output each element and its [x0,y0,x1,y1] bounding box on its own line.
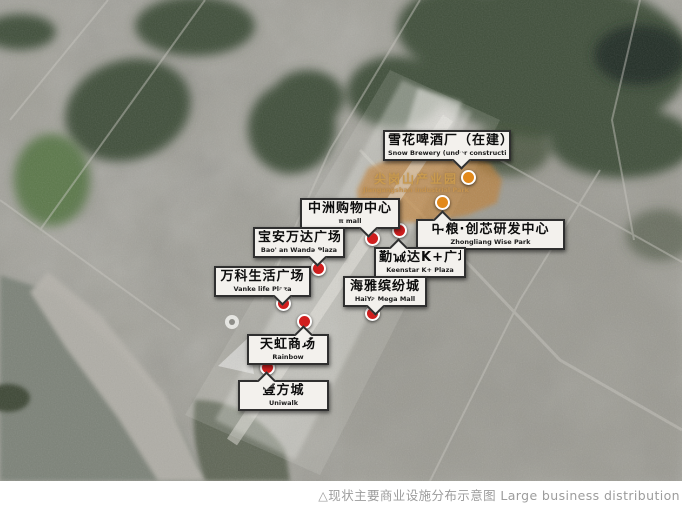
satellite-map: 尖岗山产业园 Jiangangshan Industrial Park 雪花啤酒… [0,0,682,481]
label-cn: 天虹商场 [252,337,324,353]
label-en: Bao' an Wanda Plaza [258,246,340,254]
marker-dot-zhongliang [435,195,450,210]
map-label-uniwalk: 壹方城 Uniwalk [238,380,329,411]
map-label-zhongzhou-mall: 中洲购物中心 π mall [300,198,400,229]
map-label-keenstar-plaza: 勤诚达K+广场 Keenstar K+ Plaza [374,247,466,278]
label-cn: 宝安万达广场 [258,230,340,246]
map-label-vanke-life-plaza: 万科生活广场 Vanke life Plaza [214,266,311,297]
label-en: π mall [305,217,395,225]
label-en: Uniwalk [243,399,324,407]
map-label-wanda-plaza: 宝安万达广场 Bao' an Wanda Plaza [253,227,345,258]
marker-dot-snow-brewery [461,170,476,185]
label-en: Vanke life Plaza [219,285,306,293]
label-cn: 壹方城 [243,383,324,399]
label-cn: 中洲购物中心 [305,201,395,217]
park-zone-name-en: Jiangangshan Industrial Park [350,186,482,194]
label-cn: 万科生活广场 [219,269,306,285]
label-cn: 勤诚达K+广场 [379,250,461,266]
label-cn: 雪花啤酒厂（在建） [388,133,506,149]
map-label-zhongliang-wise-park: 中粮·创芯研发中心 Zhongliang Wise Park [416,219,565,250]
label-en: Zhongliang Wise Park [421,238,560,246]
map-label-rainbow-store: 天虹商场 Rainbow [247,334,329,365]
map-label-haiya-mega-mall: 海雅缤纷城 HaiYa Mega Mall [343,276,427,307]
label-en: HaiYa Mega Mall [348,295,422,303]
label-en: Keenstar K+ Plaza [379,266,461,274]
map-label-snow-brewery: 雪花啤酒厂（在建） Snow Brewery (under constructi… [383,130,511,161]
label-en: Rainbow [252,353,324,361]
label-cn: 海雅缤纷城 [348,279,422,295]
label-en: Snow Brewery (under construction) [388,149,506,157]
figure-caption: △现状主要商业设施分布示意图 Large business distributi… [318,487,680,505]
